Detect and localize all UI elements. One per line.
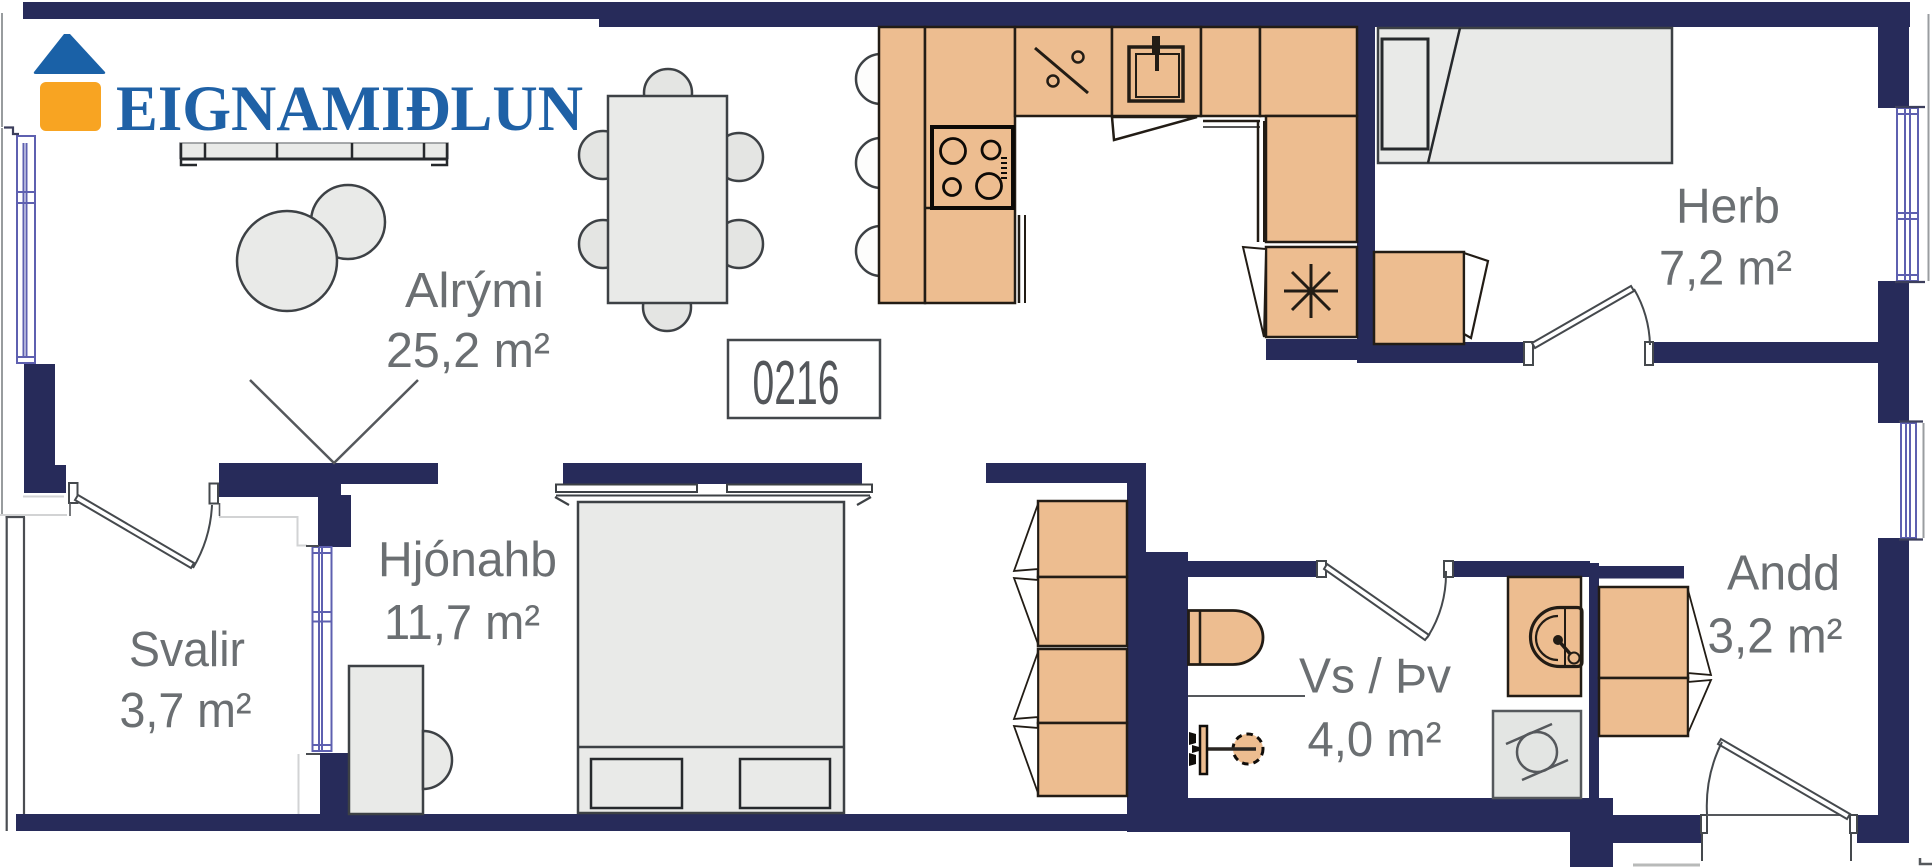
svg-text:Svalir: Svalir (129, 623, 245, 677)
svg-text:Vs / Þv: Vs / Þv (1299, 650, 1451, 704)
svg-text:3,2 m²: 3,2 m² (1708, 610, 1843, 664)
svg-text:EIGNAMIÐLUN: EIGNAMIÐLUN (116, 73, 583, 145)
svg-text:3,7 m²: 3,7 m² (120, 684, 252, 738)
svg-text:7,2 m²: 7,2 m² (1659, 242, 1792, 296)
svg-text:Hjónahb: Hjónahb (378, 533, 557, 587)
svg-text:Andd: Andd (1727, 547, 1840, 601)
svg-text:Herb: Herb (1676, 180, 1780, 234)
svg-text:4,0 m²: 4,0 m² (1308, 713, 1442, 767)
svg-text:0216: 0216 (753, 349, 840, 418)
svg-text:11,7 m²: 11,7 m² (384, 596, 540, 650)
svg-text:25,2 m²: 25,2 m² (386, 324, 550, 378)
svg-text:Alrými: Alrými (405, 264, 544, 318)
